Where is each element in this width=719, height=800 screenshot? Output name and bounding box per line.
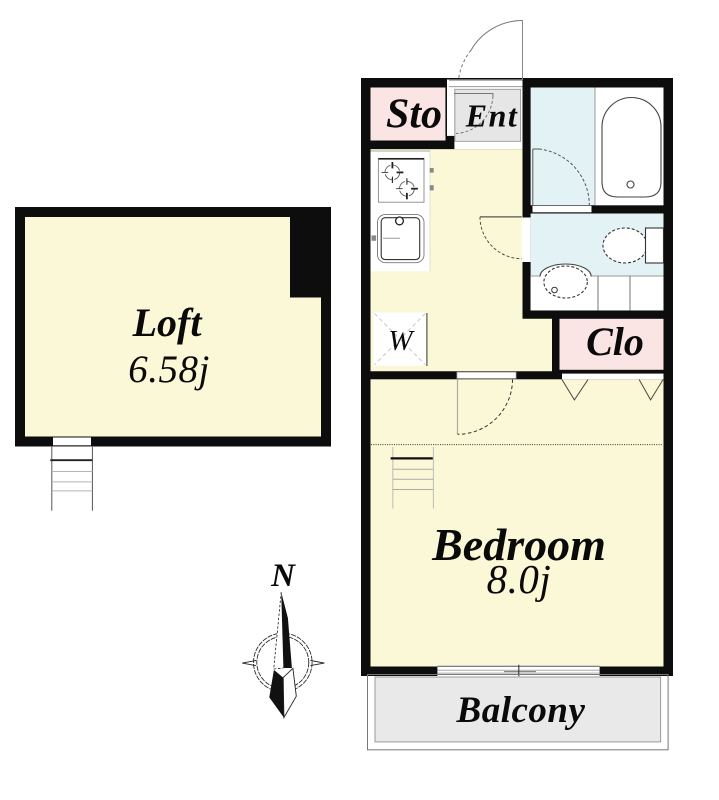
svg-text:N: N [270,558,296,594]
svg-text:8.0j: 8.0j [487,556,552,602]
svg-text:Balcony: Balcony [456,690,586,731]
svg-text:W: W [388,325,415,357]
svg-text:Clo: Clo [586,319,644,364]
svg-text:Sto: Sto [386,92,442,138]
svg-text:Ent: Ent [465,98,519,134]
svg-text:Loft: Loft [132,300,204,345]
svg-text:6.58j: 6.58j [128,348,210,391]
